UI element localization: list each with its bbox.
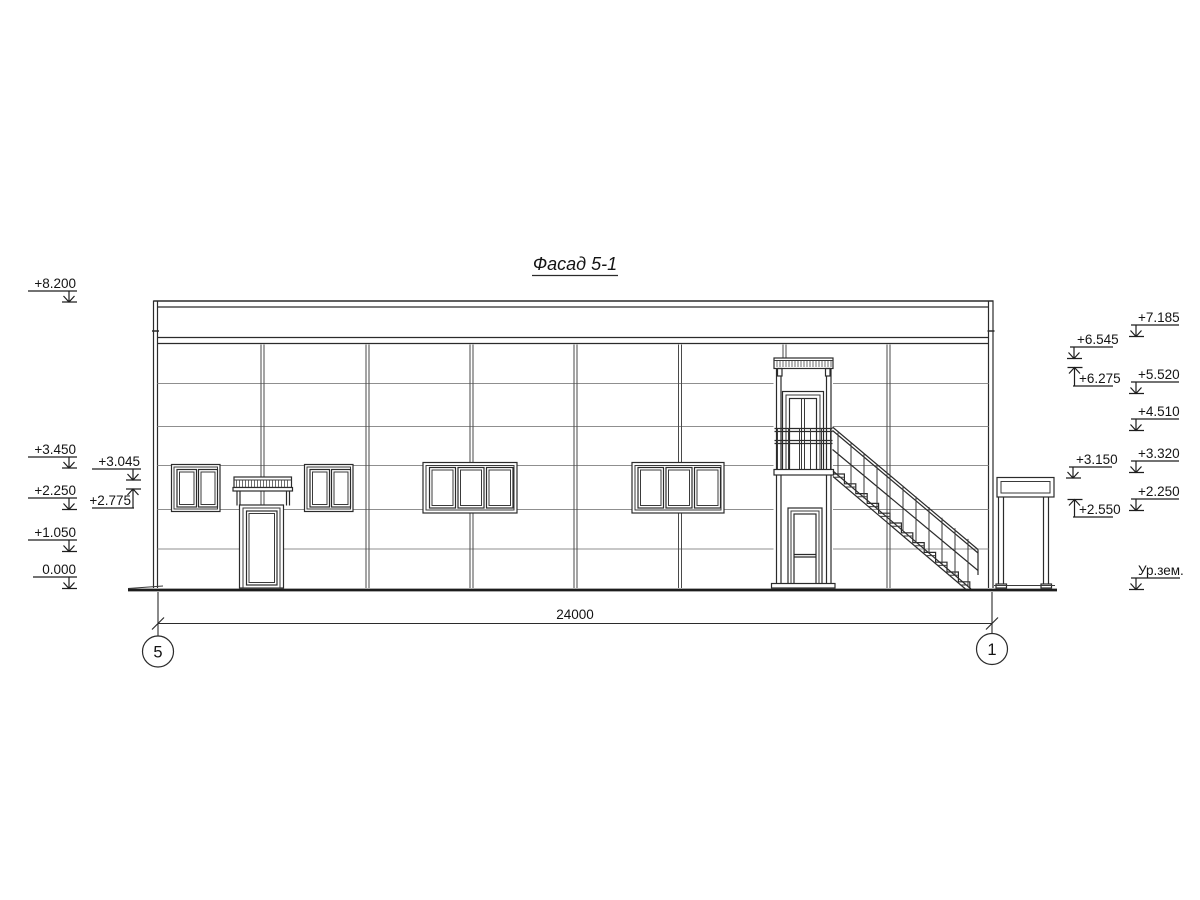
svg-text:+3.150: +3.150: [1076, 452, 1118, 467]
elevation-mark-2250-left: +2.250: [28, 483, 77, 510]
svg-text:Ур.зем.: Ур.зем.: [1138, 563, 1184, 578]
right-corner-column: [989, 301, 994, 589]
svg-text:+8.200: +8.200: [34, 276, 76, 291]
elevation-mark-3045: +3.045: [92, 454, 141, 480]
drawing-title: Фасад 5-1: [532, 254, 618, 276]
window-1: [172, 465, 221, 512]
elevation-mark-3150: +3.150: [1066, 452, 1118, 478]
elevation-mark-2775: +2.775: [89, 489, 141, 508]
left-corner-column: [154, 301, 158, 589]
window-3: [423, 463, 517, 514]
svg-text:+3.045: +3.045: [98, 454, 140, 469]
svg-text:+2.250: +2.250: [1138, 484, 1180, 499]
facade-drawing-page: Фасад 5-1: [0, 0, 1200, 900]
svg-text:0.000: 0.000: [42, 562, 76, 577]
elevation-mark-0000: 0.000: [33, 562, 77, 589]
axis-bubble-right: 1: [977, 634, 1008, 665]
svg-text:+2.775: +2.775: [89, 493, 131, 508]
right-porch: [994, 478, 1055, 589]
svg-text:+4.510: +4.510: [1138, 404, 1180, 419]
elevation-mark-3450: +3.450: [28, 442, 77, 468]
dimension-line: 24000: [152, 592, 998, 636]
svg-text:+3.320: +3.320: [1138, 446, 1180, 461]
window-2: [305, 465, 354, 512]
svg-text:+3.450: +3.450: [34, 442, 76, 457]
elevation-mark-7185: +7.185: [1129, 310, 1180, 337]
svg-text:+1.050: +1.050: [34, 525, 76, 540]
external-stair: [833, 427, 979, 589]
elevation-mark-2250-right: +2.250: [1129, 484, 1180, 511]
elevation-mark-3320: +3.320: [1129, 446, 1180, 473]
canopy-lip: [233, 488, 293, 492]
svg-text:+7.185: +7.185: [1138, 310, 1180, 325]
stair-tower: [772, 358, 836, 589]
dim-value: 24000: [556, 607, 594, 622]
canopy-posts: [237, 491, 290, 506]
porch-posts: [999, 497, 1049, 584]
axis-label-left: 5: [153, 644, 162, 662]
svg-text:+2.250: +2.250: [34, 483, 76, 498]
svg-text:+5.520: +5.520: [1138, 367, 1180, 382]
elevation-mark-6545: +6.545: [1067, 332, 1119, 359]
tower-base-plate: [772, 584, 836, 589]
elevation-mark-6275: +6.275: [1068, 368, 1121, 387]
page-title: Фасад 5-1: [533, 254, 617, 274]
svg-text:+6.545: +6.545: [1077, 332, 1119, 347]
stair-railing: [833, 427, 979, 575]
landing-slab: [774, 470, 834, 476]
elevation-mark-4510: +4.510: [1129, 404, 1180, 431]
svg-text:+6.275: +6.275: [1079, 371, 1121, 386]
axis-bubble-left: 5: [143, 636, 174, 667]
elevation-mark-8200: +8.200: [28, 276, 77, 302]
elevation-mark-ground-level: Ур.зем.: [1129, 563, 1184, 590]
elevation-mark-2550: +2.550: [1068, 500, 1121, 518]
facade-elevation-svg: Фасад 5-1: [0, 0, 1200, 900]
svg-text:+2.550: +2.550: [1079, 502, 1121, 517]
parapet-bottom-band: [158, 338, 989, 344]
elevation-mark-1050: +1.050: [28, 525, 77, 552]
entrance-door-left: [233, 477, 293, 588]
window-4: [632, 463, 724, 514]
elevation-mark-5520: +5.520: [1129, 367, 1180, 394]
porch-canopy: [997, 478, 1054, 498]
axis-label-right: 1: [987, 641, 996, 659]
